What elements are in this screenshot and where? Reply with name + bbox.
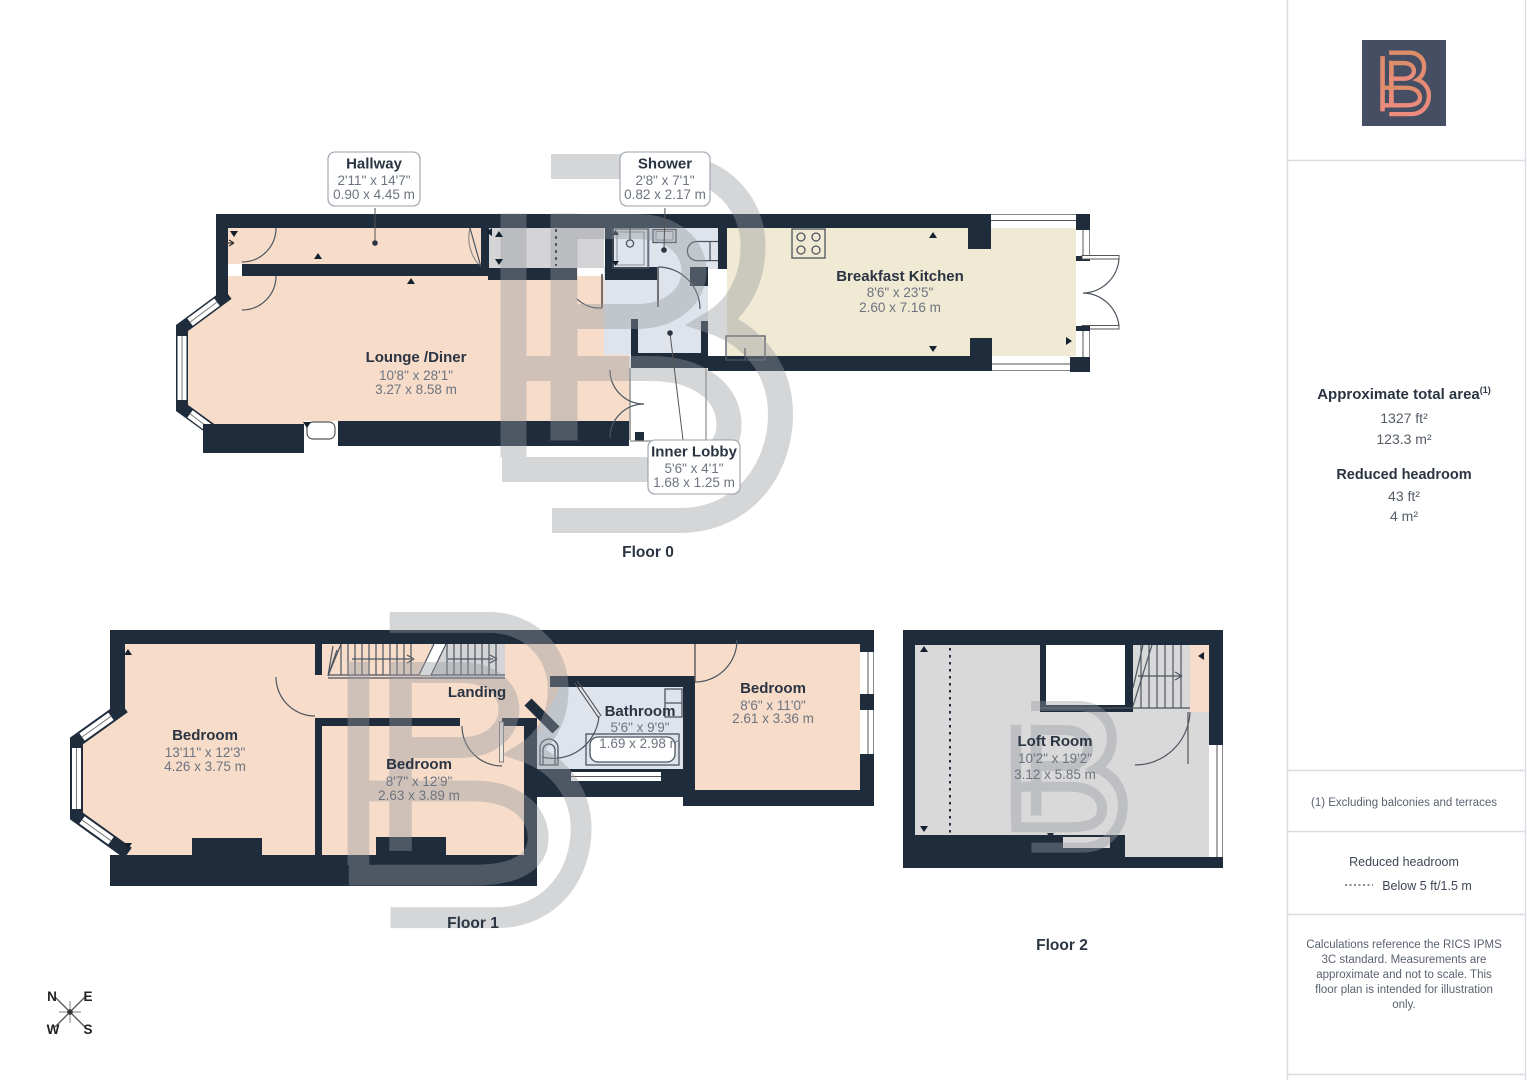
svg-text:(1) Excluding balconies and te: (1) Excluding balconies and terraces	[1311, 797, 1497, 809]
svg-text:Floor 0: Floor 0	[622, 544, 674, 561]
svg-text:43 ft²: 43 ft²	[1388, 488, 1420, 504]
svg-text:123.3 m²: 123.3 m²	[1376, 431, 1432, 447]
svg-text:8'7" x 12'9": 8'7" x 12'9"	[386, 774, 453, 789]
svg-text:Floor 1: Floor 1	[447, 915, 499, 932]
svg-text:Floor 2: Floor 2	[1036, 937, 1088, 954]
svg-text:Hallway: Hallway	[346, 156, 403, 173]
svg-text:Bathroom: Bathroom	[605, 703, 676, 720]
svg-text:10'2" x 19'2": 10'2" x 19'2"	[1018, 751, 1092, 766]
svg-text:4.26 x 3.75 m: 4.26 x 3.75 m	[164, 759, 246, 774]
svg-text:0.82 x 2.17 m: 0.82 x 2.17 m	[624, 187, 706, 202]
svg-text:Lounge /Diner: Lounge /Diner	[366, 349, 467, 366]
svg-text:3C standard. Measurements are: 3C standard. Measurements are	[1322, 954, 1487, 966]
svg-text:3.12 x 5.85 m: 3.12 x 5.85 m	[1014, 767, 1096, 782]
svg-text:approximate and not to scale.: approximate and not to scale. This	[1316, 969, 1492, 981]
svg-text:2.60 x 7.16 m: 2.60 x 7.16 m	[859, 300, 941, 315]
svg-text:Reduced headroom: Reduced headroom	[1336, 467, 1471, 483]
svg-text:Breakfast Kitchen: Breakfast Kitchen	[836, 268, 964, 285]
svg-text:4 m²: 4 m²	[1390, 508, 1418, 524]
svg-text:W: W	[47, 1022, 60, 1037]
svg-text:Shower: Shower	[638, 156, 692, 173]
svg-text:8'6" x 23'5": 8'6" x 23'5"	[867, 285, 934, 300]
svg-text:2'11" x 14'7": 2'11" x 14'7"	[337, 173, 410, 188]
svg-text:1.69 x 2.98 m: 1.69 x 2.98 m	[599, 736, 681, 751]
svg-text:Bedroom: Bedroom	[740, 680, 806, 697]
svg-text:Landing: Landing	[448, 684, 506, 701]
svg-text:10'8" x 28'1": 10'8" x 28'1"	[379, 368, 453, 383]
svg-text:N: N	[47, 989, 57, 1004]
svg-text:floor plan is intended for ill: floor plan is intended for illustration	[1315, 984, 1493, 996]
svg-text:Reduced headroom: Reduced headroom	[1349, 855, 1459, 869]
svg-text:Bedroom: Bedroom	[172, 727, 238, 744]
svg-text:Approximate total area(1): Approximate total area(1)	[1317, 385, 1491, 403]
svg-text:Below 5 ft/1.5 m: Below 5 ft/1.5 m	[1382, 879, 1472, 893]
svg-text:13'11" x 12'3": 13'11" x 12'3"	[165, 745, 246, 760]
svg-text:Bedroom: Bedroom	[386, 756, 452, 773]
svg-text:E: E	[83, 989, 92, 1004]
svg-text:3.27 x 8.58 m: 3.27 x 8.58 m	[375, 382, 457, 397]
svg-text:Inner Lobby: Inner Lobby	[651, 444, 737, 461]
svg-text:5'6" x 4'1": 5'6" x 4'1"	[664, 461, 723, 476]
svg-text:S: S	[83, 1022, 92, 1037]
svg-text:Calculations reference the RIC: Calculations reference the RICS IPMS	[1306, 939, 1502, 951]
svg-text:2.61 x 3.36 m: 2.61 x 3.36 m	[732, 711, 814, 726]
svg-text:2.63 x 3.89 m: 2.63 x 3.89 m	[378, 788, 460, 803]
svg-text:0.90 x 4.45 m: 0.90 x 4.45 m	[333, 187, 415, 202]
svg-text:Loft Room: Loft Room	[1018, 733, 1093, 750]
svg-text:only.: only.	[1392, 999, 1415, 1011]
svg-text:1327 ft²: 1327 ft²	[1380, 410, 1428, 426]
svg-text:5'6" x 9'9": 5'6" x 9'9"	[610, 720, 669, 735]
svg-text:1.68 x 1.25 m: 1.68 x 1.25 m	[653, 475, 735, 490]
svg-text:2'8" x 7'1": 2'8" x 7'1"	[635, 173, 694, 188]
